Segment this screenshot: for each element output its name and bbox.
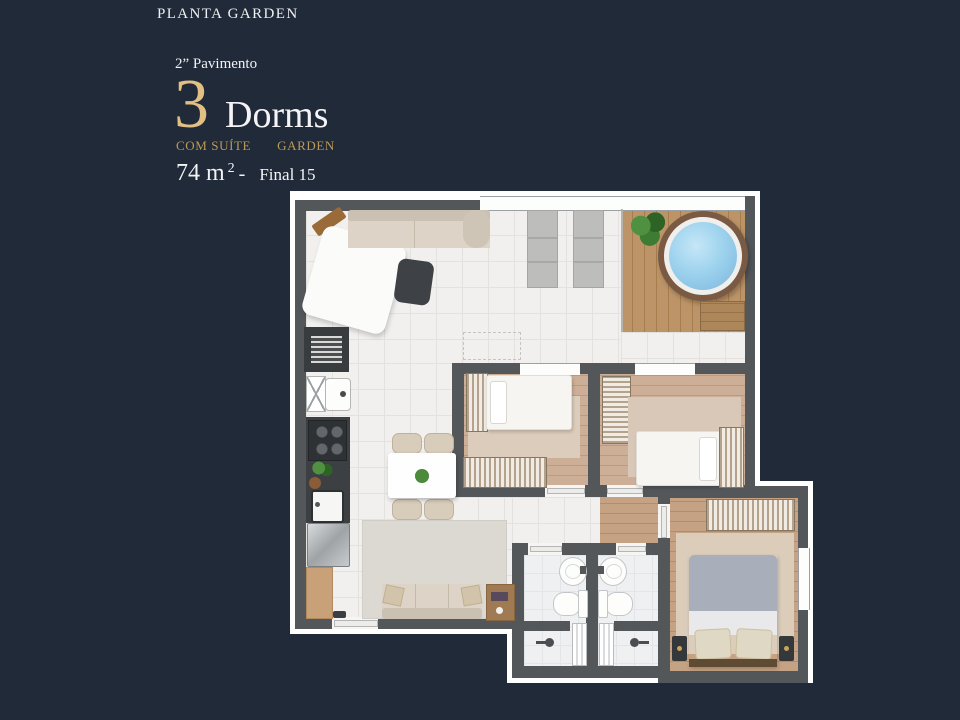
area-line: 74 m 2 - Final 15 bbox=[176, 160, 316, 187]
side-table bbox=[486, 584, 515, 621]
door-leaf bbox=[618, 546, 646, 552]
bathroom2-toilet bbox=[605, 592, 633, 616]
kitchen-plant bbox=[311, 459, 333, 479]
deck-glass-wall bbox=[480, 196, 750, 211]
bathroom1-shower-head bbox=[545, 638, 554, 647]
bathroom2-shower-head bbox=[630, 638, 639, 647]
bathroom2-shower-arm bbox=[639, 641, 649, 644]
dorms-number: 3 bbox=[174, 70, 209, 140]
nightstand-left bbox=[672, 636, 687, 661]
sofa-pillow bbox=[460, 584, 482, 606]
sun-lounger bbox=[573, 210, 604, 288]
entry-door-leaf bbox=[334, 620, 378, 627]
sofa-pillow bbox=[382, 584, 405, 607]
vent-grille bbox=[311, 336, 342, 363]
wall-bedroom-divider bbox=[588, 363, 600, 497]
door-leaf bbox=[530, 546, 562, 552]
hall-floor bbox=[512, 497, 600, 543]
suite-pillow bbox=[694, 628, 732, 660]
page-title: PLANTA GARDEN bbox=[157, 6, 299, 23]
kitchen-sink bbox=[311, 490, 344, 523]
feature-tags: COM SUÍTE GARDEN bbox=[176, 138, 335, 154]
wall-left bbox=[295, 200, 306, 629]
hall-wood-floor bbox=[600, 497, 658, 543]
floor-annotation bbox=[463, 332, 521, 360]
bathroom2-glass-door bbox=[599, 623, 614, 666]
deck-edge bbox=[621, 209, 623, 332]
wall-bath-partial-left bbox=[524, 621, 570, 631]
bathroom1-faucet bbox=[580, 566, 586, 574]
dining-chair bbox=[392, 499, 422, 520]
fridge bbox=[307, 523, 350, 567]
floor-plan bbox=[295, 196, 813, 684]
suite-pillow bbox=[735, 628, 773, 660]
door-leaf bbox=[607, 488, 643, 494]
laundry-tank bbox=[306, 376, 326, 412]
jacuzzi-water bbox=[669, 222, 737, 290]
deck-bench bbox=[700, 301, 745, 331]
sun-lounger bbox=[527, 210, 558, 288]
wall-bedrooms-top bbox=[452, 363, 755, 374]
suite-wardrobe bbox=[706, 499, 795, 531]
table-plant bbox=[415, 469, 429, 483]
bedroom1-wardrobe bbox=[463, 457, 547, 488]
wall-suite-bottom bbox=[658, 671, 808, 683]
jar bbox=[309, 477, 321, 489]
final-label: Final 15 bbox=[259, 165, 315, 185]
door-leaf bbox=[661, 506, 667, 538]
bathroom1-shower-arm bbox=[536, 641, 546, 644]
bedroom1-headboard bbox=[466, 373, 488, 432]
window-suite bbox=[798, 548, 810, 610]
dorms-label: Dorms bbox=[225, 93, 328, 137]
door-leaf bbox=[547, 488, 585, 494]
tag-com-suite: COM SUÍTE bbox=[176, 138, 251, 154]
wall-right-deck bbox=[745, 196, 755, 497]
suite-headboard bbox=[689, 659, 777, 667]
area-superscript: 2 bbox=[228, 161, 235, 177]
wall-bath-bottom bbox=[512, 666, 670, 678]
bathroom1-toilet-tank bbox=[578, 590, 588, 618]
dining-chair bbox=[424, 433, 454, 454]
suite-bed bbox=[689, 555, 777, 667]
armchair bbox=[393, 258, 435, 307]
bedroom2-pillow bbox=[699, 437, 717, 481]
washer bbox=[325, 378, 351, 411]
dining-chair bbox=[424, 499, 454, 520]
dining-chair bbox=[392, 433, 422, 454]
wall-bath-partial-right bbox=[614, 621, 660, 631]
slide: PLANTA GARDEN 2” Pavimento 3 Dorms COM S… bbox=[0, 0, 960, 720]
area-value: 74 m bbox=[176, 160, 225, 187]
sofa-top-armrest bbox=[463, 210, 490, 248]
suite-duvet bbox=[689, 555, 777, 613]
stove bbox=[308, 420, 347, 461]
nightstand-right bbox=[779, 636, 794, 661]
bathroom2-toilet-tank bbox=[598, 590, 608, 618]
deck-lower-floor bbox=[621, 332, 745, 363]
sofa-bottom-back bbox=[382, 608, 482, 619]
bedroom2-headboard bbox=[719, 427, 744, 488]
bathroom2-faucet bbox=[598, 566, 604, 574]
dorms-line: 3 Dorms bbox=[174, 70, 328, 140]
area-separator: - bbox=[239, 163, 246, 186]
dining-table bbox=[388, 453, 456, 498]
window-bedroom2 bbox=[635, 363, 695, 376]
bedroom1-pillow bbox=[490, 381, 507, 424]
jacuzzi bbox=[658, 211, 748, 301]
bathroom1-glass-door bbox=[572, 623, 587, 666]
entry-door-handle bbox=[333, 611, 346, 618]
bedroom2-wardrobe bbox=[602, 376, 631, 444]
ac-vent-unit bbox=[304, 327, 349, 372]
bathroom1-toilet bbox=[553, 592, 581, 616]
counter-wood bbox=[306, 567, 333, 619]
tag-garden: GARDEN bbox=[277, 138, 335, 154]
